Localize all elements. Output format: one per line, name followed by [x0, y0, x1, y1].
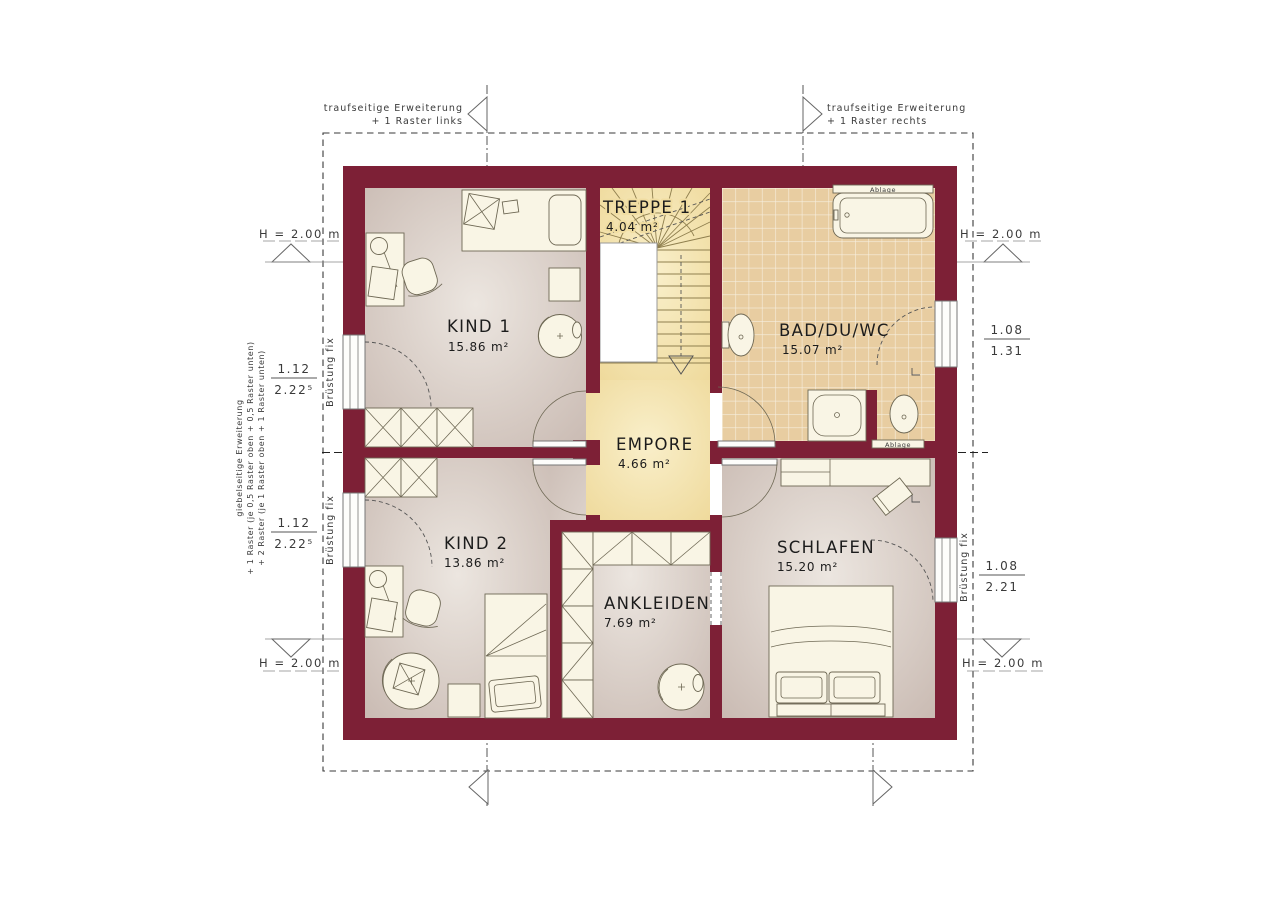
ankleiden-wardrobe-left — [562, 532, 593, 718]
floorplan-canvas: traufseitige Erweiterung + 1 Raster link… — [0, 0, 1280, 905]
floorplan-drawing: traufseitige Erweiterung + 1 Raster link… — [0, 0, 1280, 905]
height-marker-left-top: H = 2.00 m — [259, 227, 343, 262]
shower — [808, 390, 866, 441]
eave-extension-right-label-2: + 1 Raster rechts — [827, 116, 927, 127]
kind2-armchair — [382, 653, 439, 709]
svg-text:H = 2.00 m: H = 2.00 m — [960, 227, 1042, 241]
schlafen-double-bed — [769, 586, 893, 717]
kind1-area: 15.86 m² — [448, 340, 509, 354]
parapet-label-right: Brüstung fix — [959, 532, 970, 602]
bad-area: 15.07 m² — [782, 343, 843, 357]
kind1-cushion — [464, 193, 500, 229]
kind2-wardrobe — [365, 458, 437, 497]
dimension-left-bottom: 1.12 2.22⁵ — [271, 516, 317, 551]
kind2-stool — [448, 684, 480, 717]
grid-marker-top-left-icon — [468, 97, 487, 131]
stairwell-void — [600, 243, 657, 362]
gable-extension-label-2: + 1 Raster (je 0,5 Raster oben + 0,5 Ras… — [246, 341, 255, 574]
eave-extension-right-label-1: traufseitige Erweiterung — [827, 103, 966, 114]
parapet-label-left-bottom: Brüstung fix — [325, 495, 336, 565]
kind1-door-leaf — [533, 441, 586, 447]
svg-text:2.21: 2.21 — [985, 580, 1018, 594]
kind1-round-chair — [538, 315, 581, 358]
bad-shelf-bottom-label: Ablage — [885, 441, 911, 449]
schlafen-sideboard — [781, 459, 930, 486]
eave-extension-left-label-2: + 1 Raster links — [372, 116, 463, 127]
bad-door-leaf — [718, 441, 775, 447]
empore-label: EMPORE — [616, 435, 693, 454]
svg-text:1.31: 1.31 — [990, 344, 1023, 358]
kind1-label: KIND 1 — [447, 317, 511, 336]
svg-text:H = 2.00 m: H = 2.00 m — [962, 656, 1044, 670]
ankleiden-chair — [658, 664, 704, 710]
grid-marker-bottom-left-icon — [469, 770, 488, 804]
schlafen-door-leaf — [722, 459, 777, 465]
height-marker-right-top: H = 2.00 m — [957, 227, 1042, 262]
ankleiden-wardrobe-top — [593, 532, 710, 565]
treppe1-area: 4.04 m² — [606, 220, 659, 234]
kind2-door-leaf — [533, 459, 586, 465]
kind2-label: KIND 2 — [444, 534, 508, 553]
kind2-bed — [485, 594, 547, 718]
svg-text:H = 2.00 m: H = 2.00 m — [259, 656, 341, 670]
dimension-right-bottom: 1.08 2.21 — [979, 559, 1025, 594]
svg-text:1.08: 1.08 — [990, 323, 1023, 337]
ankleiden-label: ANKLEIDEN — [604, 594, 710, 613]
dimension-right-top: 1.08 1.31 — [984, 323, 1030, 358]
kind1-wardrobe — [365, 408, 473, 447]
gable-extension-label-1: giebelseitige Erweiterung — [235, 399, 244, 516]
eave-extension-left-label-1: traufseitige Erweiterung — [324, 103, 463, 114]
bathtub — [833, 193, 933, 238]
kind2-area: 13.86 m² — [444, 556, 505, 570]
height-marker-left-bottom: H = 2.00 m — [259, 639, 343, 671]
svg-text:2.22⁵: 2.22⁵ — [274, 383, 314, 397]
kind1-pillow — [549, 195, 581, 245]
dimension-left-top: 1.12 2.22⁵ — [271, 362, 317, 397]
height-marker-right-bottom: H = 2.00 m — [957, 639, 1044, 671]
bad-label: BAD/DU/WC — [779, 321, 890, 340]
svg-text:H = 2.00 m: H = 2.00 m — [259, 227, 341, 241]
svg-text:1.12: 1.12 — [277, 362, 310, 376]
grid-marker-top-right-icon — [803, 97, 822, 131]
empore-area: 4.66 m² — [618, 457, 671, 471]
svg-text:2.22⁵: 2.22⁵ — [274, 537, 314, 551]
parapet-label-left-top: Brüstung fix — [325, 337, 336, 407]
schlafen-label: SCHLAFEN — [777, 538, 875, 557]
kind1-side-table — [549, 268, 580, 301]
treppe1-label: TREPPE 1 — [602, 198, 691, 217]
gable-extension-label-3: + 2 Raster (je 1 Raster oben + 1 Raster … — [257, 350, 266, 566]
bidet — [890, 395, 918, 433]
svg-text:1.08: 1.08 — [985, 559, 1018, 573]
svg-text:1.12: 1.12 — [277, 516, 310, 530]
ankleiden-area: 7.69 m² — [604, 616, 657, 630]
grid-marker-bottom-right-icon — [873, 770, 892, 804]
schlafen-area: 15.20 m² — [777, 560, 838, 574]
